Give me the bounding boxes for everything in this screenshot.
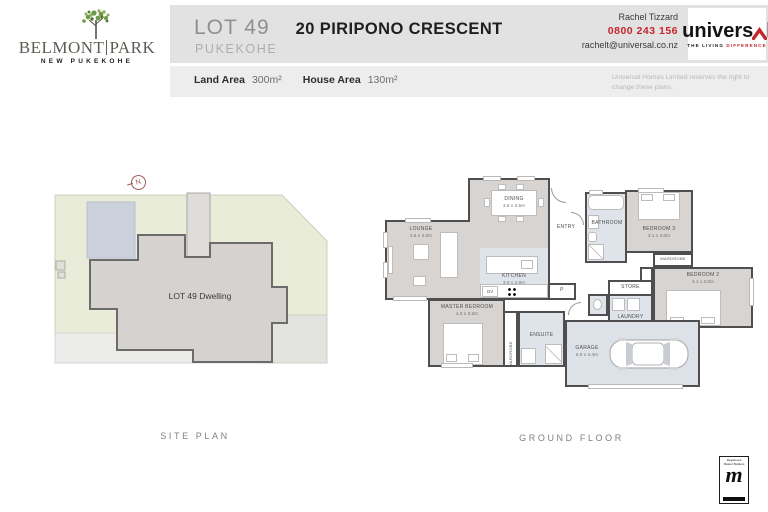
- logo-tagline: THE LIVING DIFFERENCE: [687, 43, 767, 48]
- door-arc: [551, 188, 566, 203]
- brand-name-right: PARK: [109, 38, 155, 57]
- master-builders-badge: Registered Master Builders m: [719, 456, 749, 504]
- room-name: GARAGE: [569, 345, 605, 352]
- agent-name: Rachel Tizzard: [540, 11, 678, 24]
- dryer: [627, 298, 640, 311]
- lounge-label: LOUNGE 4.6 x 4.0m: [391, 226, 451, 240]
- sink: [521, 260, 533, 269]
- chair: [516, 184, 524, 190]
- logo-text-left: univers: [682, 21, 753, 41]
- garage-label: GARAGE 6.0 x 4.4m: [569, 345, 605, 359]
- chair: [498, 216, 506, 222]
- oven-label: OV: [487, 289, 494, 294]
- site-plan-caption: SITE PLAN: [45, 431, 345, 441]
- room-dims: 4.0 x 3.2m: [435, 311, 499, 318]
- window: [441, 363, 473, 368]
- pillow: [468, 354, 479, 362]
- armchair: [413, 244, 429, 260]
- pillow: [446, 354, 457, 362]
- wall: [548, 178, 550, 300]
- lot-number: LOT 49: [194, 16, 270, 40]
- pillow: [663, 194, 675, 201]
- agent-contact: Rachel Tizzard 0800 243 156 rachelt@univ…: [540, 11, 678, 52]
- room-name: LOUNGE: [391, 226, 451, 233]
- bathroom-label: BATHROOM: [589, 220, 625, 227]
- bathtub: [588, 195, 624, 210]
- area-summary: Land Area 300m² House Area 130m²: [194, 74, 411, 86]
- window: [383, 232, 388, 248]
- house-area-label: House Area: [303, 74, 361, 86]
- badge-glyph: m: [725, 465, 742, 485]
- room-name: ENTRY: [551, 224, 581, 231]
- room-name: DINING: [486, 196, 542, 203]
- tagline-red: DIFFERENCE: [726, 43, 766, 48]
- land-area-value: 300m²: [252, 74, 282, 86]
- wall: [468, 178, 470, 222]
- belmont-park-wordmark: BELMONTPARK: [12, 38, 162, 58]
- belmont-park-logo: BELMONTPARK NEW PUKEKOHE: [12, 8, 162, 70]
- tv-unit: [388, 246, 393, 274]
- cooktop-icon: [507, 287, 517, 297]
- entry-label: ENTRY: [551, 224, 581, 231]
- agent-email: rachelt@universal.co.nz: [540, 39, 678, 52]
- window: [517, 176, 535, 181]
- badge-bar: [723, 497, 745, 501]
- brand-subtitle: NEW PUKEKOHE: [12, 58, 162, 65]
- land-area-label: Land Area: [194, 74, 245, 86]
- master-label: MASTER BEDROOM 4.0 x 3.2m: [435, 304, 499, 318]
- bedroom3-label: BEDROOM 3 3.1 x 3.0m: [631, 226, 687, 240]
- tree-icon: [74, 8, 118, 40]
- wardrobe-label: WARDROBE: [508, 312, 513, 367]
- garage-door: [588, 384, 683, 389]
- site-plan-drawing: LOT 49 Dwelling: [45, 165, 345, 390]
- room-name: KITCHEN: [486, 273, 542, 280]
- suburb: PUKEKOHE: [195, 42, 277, 56]
- wall: [468, 178, 550, 180]
- pillow: [701, 317, 715, 324]
- room-name: P: [548, 287, 576, 294]
- window: [589, 190, 603, 195]
- chair: [498, 184, 506, 190]
- window: [483, 176, 501, 181]
- toilet: [588, 232, 597, 242]
- vanity: [521, 348, 536, 364]
- floor-plan: DINING 3.6 x 3.5m LOUNGE 4.6 x 4.0m OV K…: [383, 160, 760, 400]
- ensuite-label: ENSUITE: [521, 332, 562, 339]
- bedroom2-label: BEDROOM 2 3.1 x 3.0m: [675, 272, 731, 286]
- room-dims: 3.1 x 3.0m: [675, 279, 731, 286]
- ottoman: [413, 276, 426, 286]
- window: [405, 218, 431, 223]
- window: [383, 262, 388, 278]
- north-letter: N: [135, 178, 142, 186]
- title-row: LOT 49 20 PIRIPONO CRESCENT: [194, 16, 503, 40]
- dwelling-label: LOT 49 Dwelling: [169, 291, 232, 301]
- room-name: BATHROOM: [589, 220, 625, 227]
- store-label: STORE: [608, 284, 653, 291]
- dining-label: DINING 3.6 x 3.5m: [486, 196, 542, 210]
- washer: [612, 298, 625, 311]
- shower: [588, 244, 604, 260]
- room-dims: 3.1 x 3.0m: [631, 233, 687, 240]
- street-address: 20 PIRIPONO CRESCENT: [296, 20, 503, 39]
- pillow: [641, 194, 653, 201]
- house-area-value: 130m²: [368, 74, 398, 86]
- tagline-black: THE LIVING: [687, 43, 726, 48]
- site-plan: LOT 49 Dwelling N: [45, 165, 345, 390]
- oven: OV: [482, 286, 498, 297]
- brand-name-left: BELMONT: [19, 38, 105, 57]
- room-name: MASTER BEDROOM: [435, 304, 499, 311]
- car-icon: [608, 336, 690, 372]
- universal-homes-logo: univers l THE LIVING DIFFERENCE: [688, 8, 766, 60]
- kitchen-label: KITCHEN 3.0 x 2.8m: [486, 273, 542, 287]
- wardrobe-label: WARDROBE: [653, 256, 693, 262]
- room-dims: 3.6 x 3.5m: [486, 203, 542, 210]
- room-name: BEDROOM 2: [675, 272, 731, 279]
- universal-wordmark: univers l: [682, 21, 768, 41]
- room-name: BEDROOM 3: [631, 226, 687, 233]
- toilet: [593, 299, 602, 310]
- agent-phone: 0800 243 156: [540, 24, 678, 39]
- disclaimer-text: Universal Homes Limited reserves the rig…: [612, 73, 750, 93]
- door-arc: [568, 302, 581, 315]
- sliding-door: [393, 296, 427, 301]
- room-dims: 4.6 x 4.0m: [391, 233, 451, 240]
- window: [638, 188, 664, 193]
- roof-icon: [752, 27, 767, 40]
- floor-plan-caption: GROUND FLOOR: [383, 433, 760, 443]
- chair: [516, 216, 524, 222]
- shower: [545, 344, 562, 364]
- room-dims: 3.0 x 2.8m: [486, 280, 542, 287]
- door-arc: [571, 212, 584, 225]
- pantry-label: P: [548, 287, 576, 294]
- window: [749, 278, 754, 306]
- room-dims: 6.0 x 4.4m: [569, 352, 605, 359]
